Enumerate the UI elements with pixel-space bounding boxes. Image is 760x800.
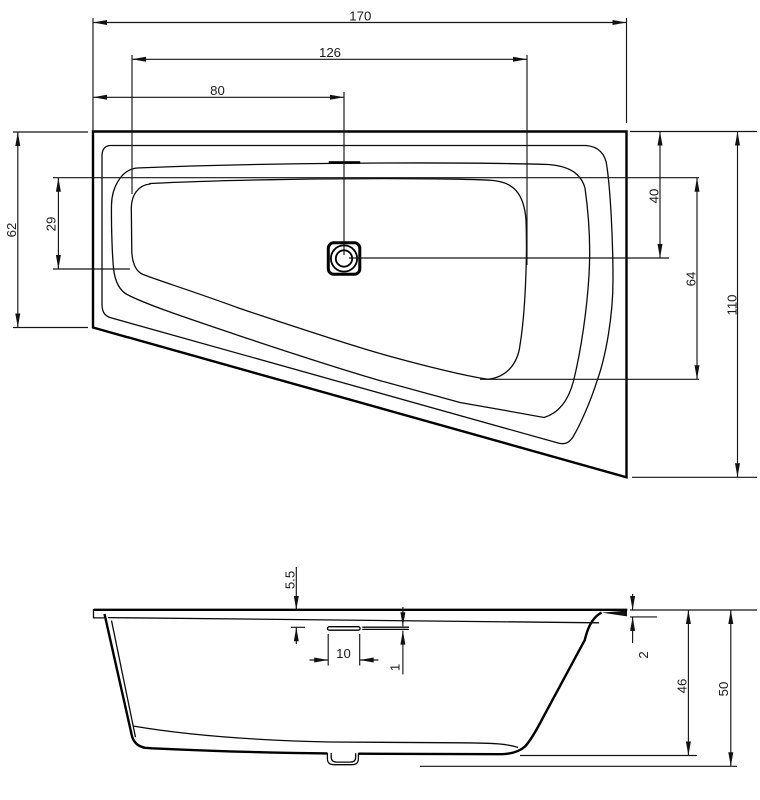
svg-text:64: 64 bbox=[684, 272, 699, 287]
svg-text:62: 62 bbox=[4, 223, 19, 238]
svg-text:126: 126 bbox=[319, 45, 341, 60]
svg-text:10: 10 bbox=[336, 646, 351, 661]
svg-text:5.5: 5.5 bbox=[282, 571, 297, 589]
svg-text:1: 1 bbox=[388, 664, 403, 671]
svg-text:40: 40 bbox=[647, 189, 662, 204]
svg-text:2: 2 bbox=[636, 651, 651, 658]
svg-text:80: 80 bbox=[210, 83, 225, 98]
svg-text:46: 46 bbox=[675, 679, 690, 694]
svg-text:170: 170 bbox=[349, 8, 371, 23]
svg-text:110: 110 bbox=[725, 294, 740, 315]
svg-text:50: 50 bbox=[716, 682, 731, 697]
svg-text:29: 29 bbox=[44, 217, 59, 232]
